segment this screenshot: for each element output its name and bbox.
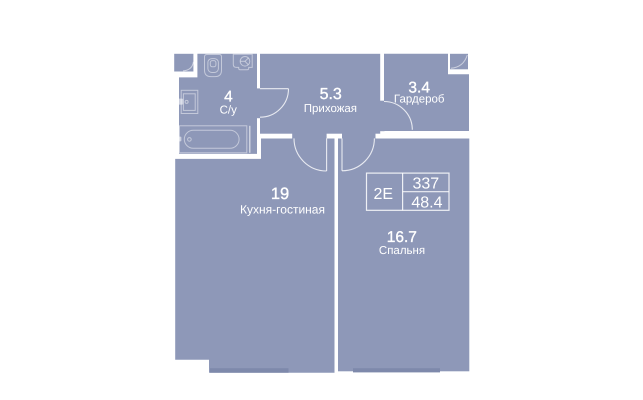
- svg-text:4: 4: [224, 89, 233, 106]
- svg-text:Прихожая: Прихожая: [304, 103, 357, 115]
- svg-text:5.3: 5.3: [320, 86, 342, 103]
- svg-text:337: 337: [412, 176, 439, 193]
- svg-text:Спальня: Спальня: [379, 245, 425, 257]
- svg-text:19: 19: [271, 185, 289, 203]
- svg-text:16.7: 16.7: [387, 229, 417, 246]
- svg-text:С/у: С/у: [220, 105, 238, 117]
- svg-text:Кухня-гостиная: Кухня-гостиная: [240, 202, 325, 216]
- svg-text:2Е: 2Е: [374, 186, 394, 203]
- svg-text:48.4: 48.4: [411, 194, 442, 211]
- svg-text:Гардероб: Гардероб: [394, 94, 445, 106]
